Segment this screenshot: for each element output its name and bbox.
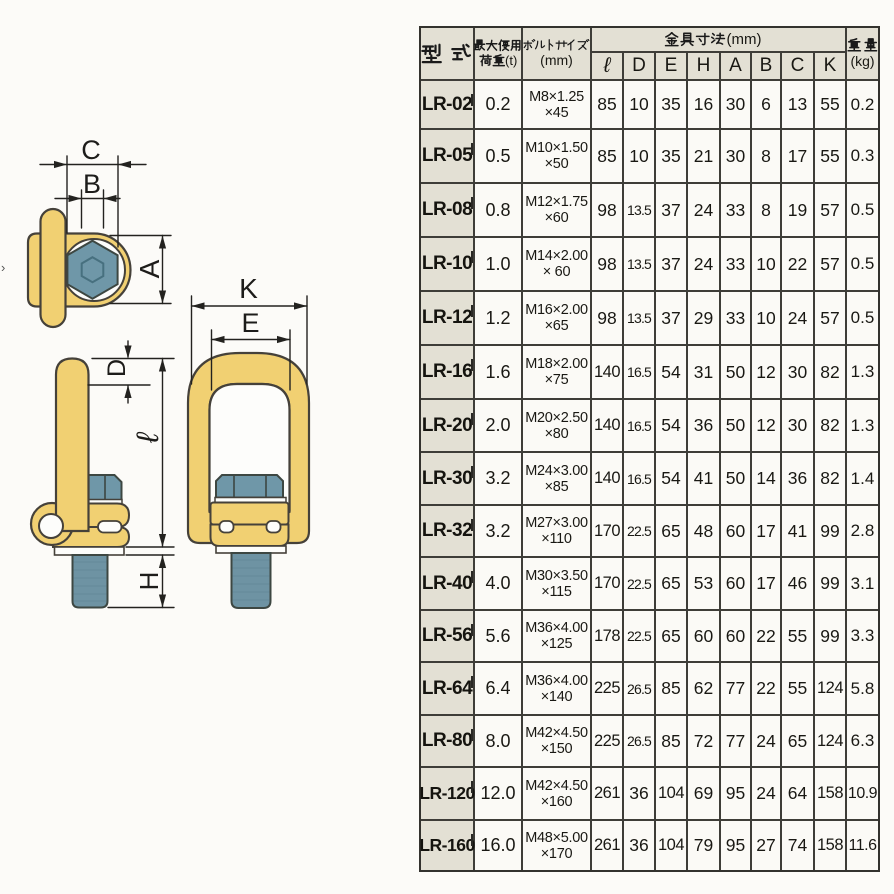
svg-text:H: H	[134, 572, 164, 591]
svg-text:›: ›	[1, 260, 5, 275]
svg-text:C: C	[81, 135, 101, 165]
svg-text:D: D	[103, 359, 131, 377]
svg-text:A: A	[134, 259, 165, 278]
svg-text:B: B	[83, 169, 101, 199]
svg-text:ℓ: ℓ	[130, 431, 165, 444]
svg-text:E: E	[241, 308, 259, 338]
svg-text:K: K	[239, 273, 258, 304]
